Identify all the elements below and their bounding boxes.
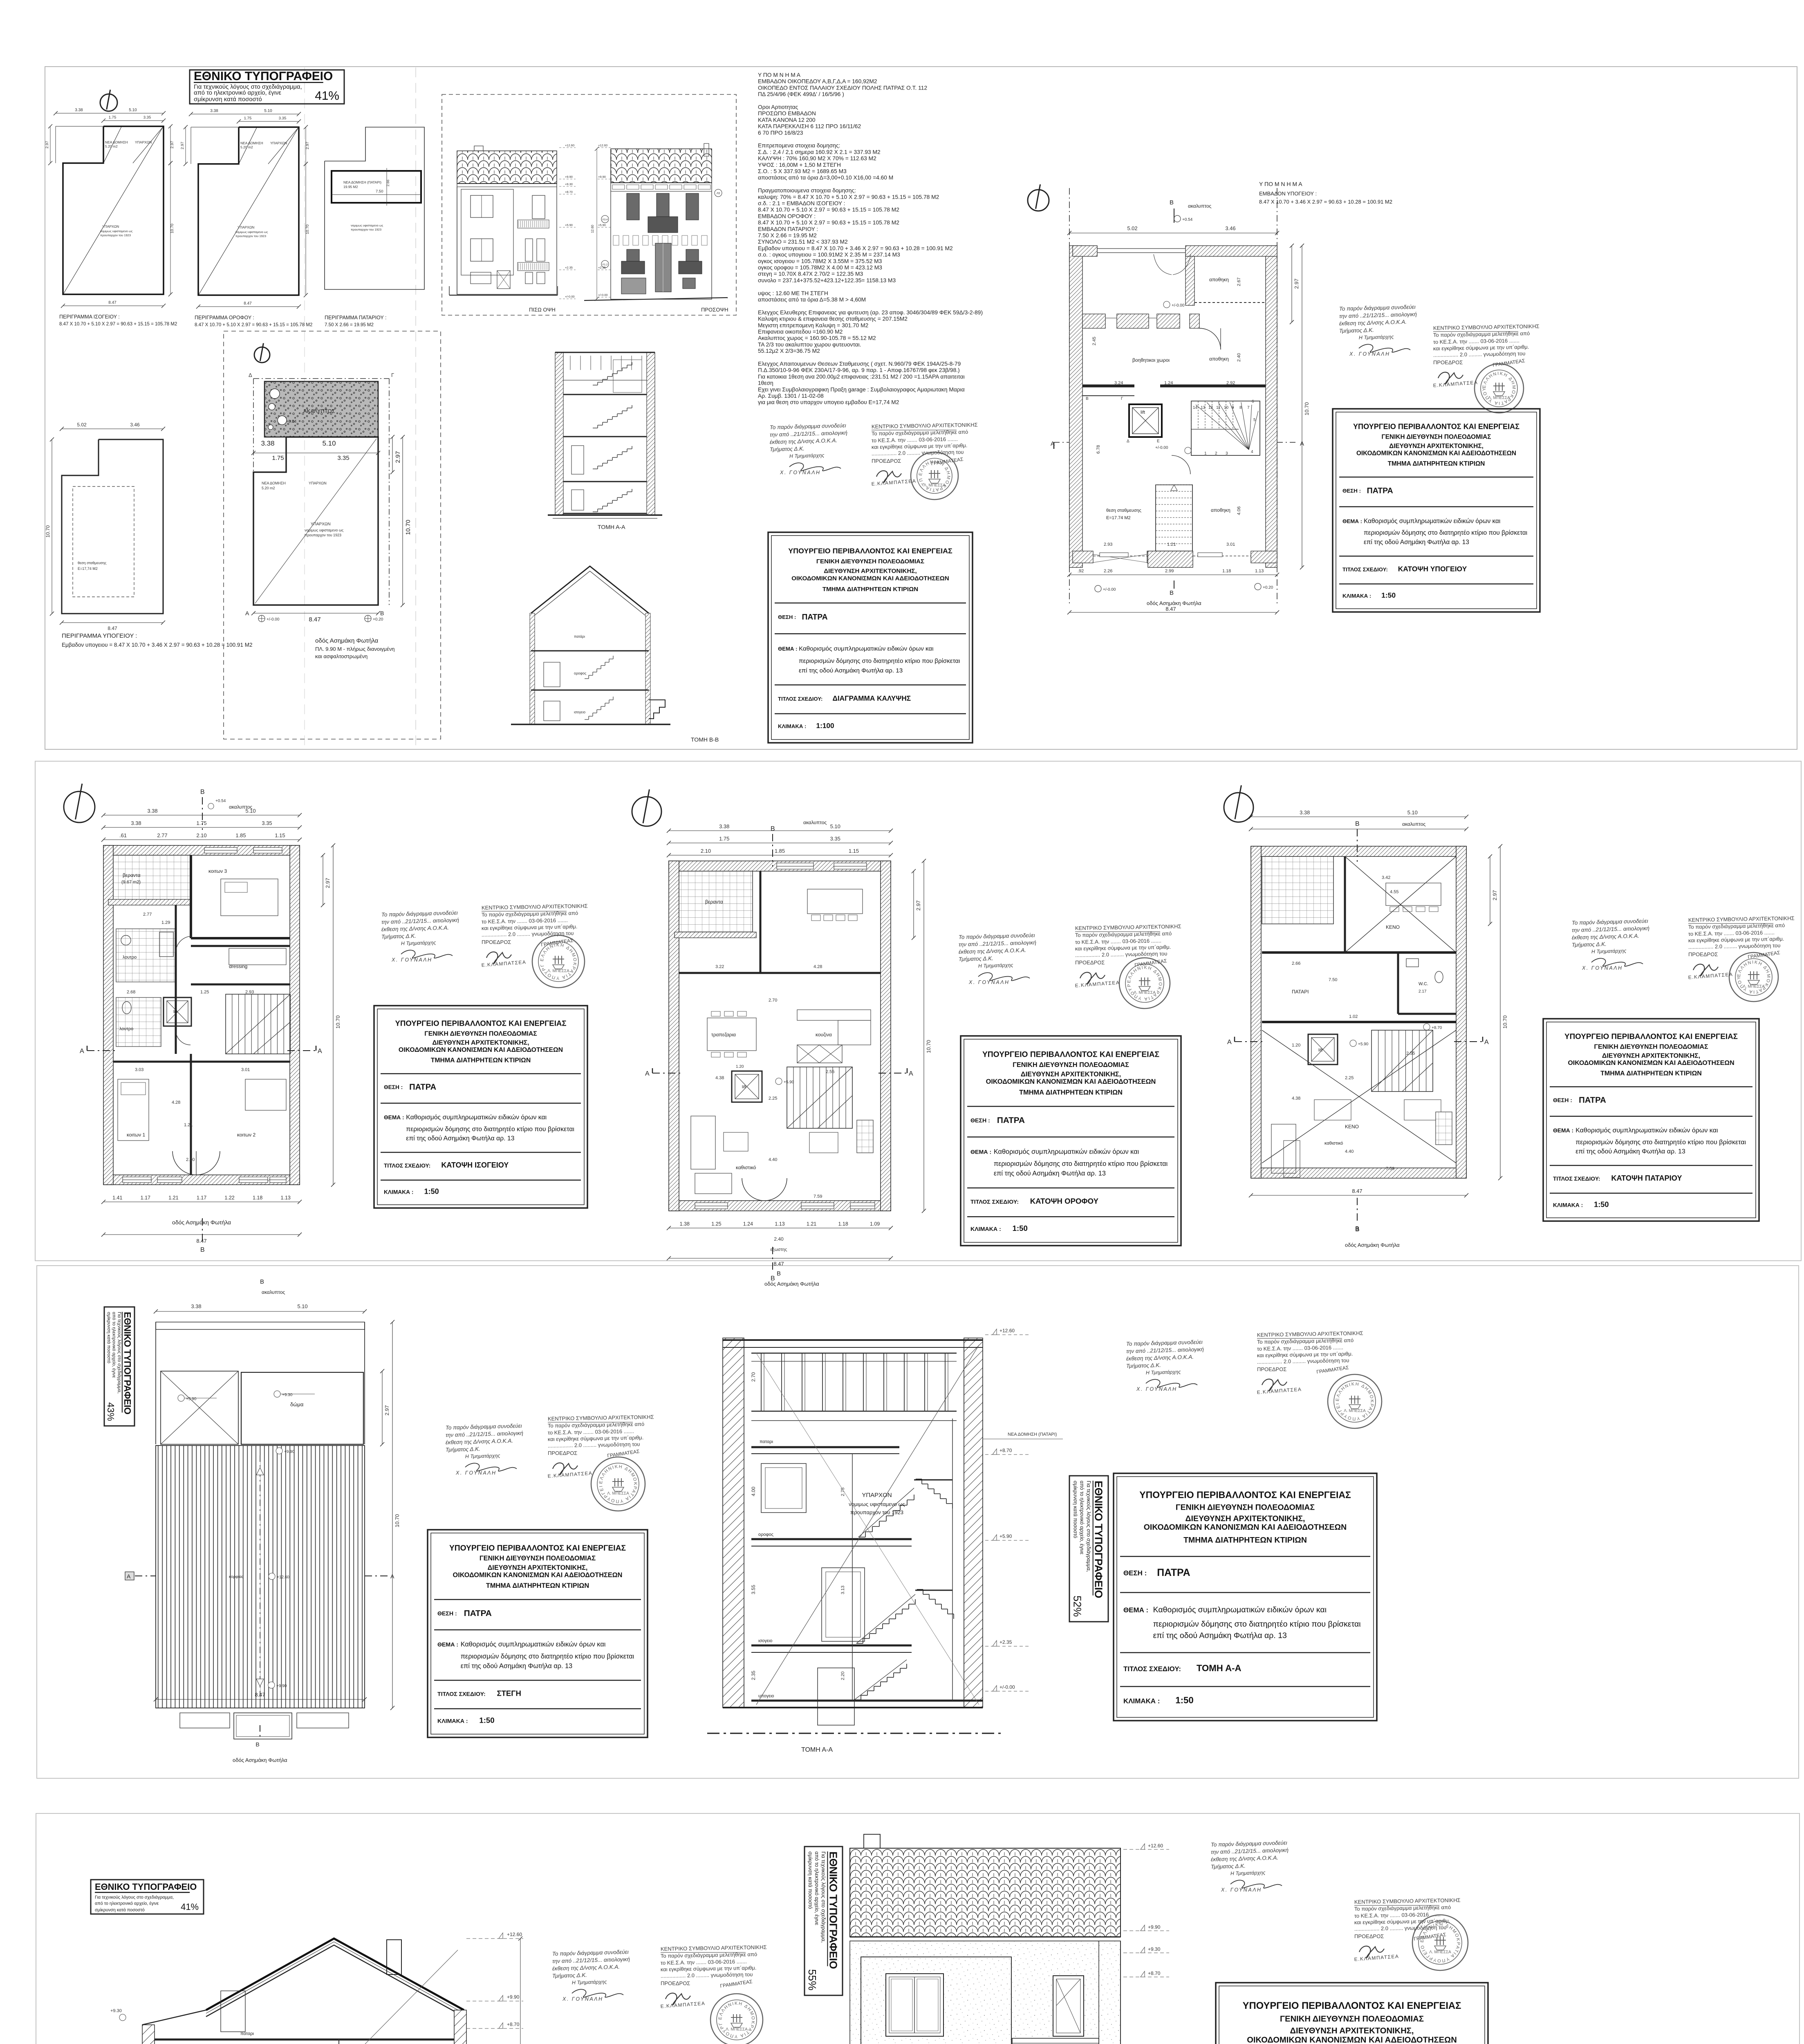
- svg-text:4.28: 4.28: [172, 1100, 180, 1105]
- svg-text:3.35: 3.35: [337, 455, 349, 462]
- svg-text:Τμήματος Δ.Κ.: Τμήματος Δ.Κ.: [1572, 941, 1607, 948]
- svg-text:lift: lift: [173, 1010, 177, 1014]
- svg-text:lift: lift: [1318, 1048, 1322, 1053]
- svg-text:σ.δ. : 2.1 = ΕΜΒΑΔΟΝ Ι: σ.δ. : 2.1 = ΕΜΒΑΔΟΝ ΙΣΟΓΕΙΟΥ :: [758, 200, 845, 206]
- svg-text:Χ. ΓΟΥΝΑΛΗ: Χ. ΓΟΥΝΑΛΗ: [455, 1470, 497, 1476]
- svg-text:νομιμως υφισταμενο ως: νομιμως υφισταμενο ως: [849, 1501, 905, 1507]
- svg-text:Β: Β: [777, 1270, 781, 1277]
- svg-text:2.97: 2.97: [384, 1405, 390, 1415]
- svg-text:ΔΙΕΥΘΥΝΣΗ ΑΡΧΙΤΕΚΤΟΝΙΚΗΣ,: ΔΙΕΥΘΥΝΣΗ ΑΡΧΙΤΕΚΤΟΝΙΚΗΣ,: [1021, 1071, 1121, 1078]
- svg-text:ΠΔ 25/4/96 (ΦΕΚ 499Δ' / 16/5/9: ΠΔ 25/4/96 (ΦΕΚ 499Δ' / 16/5/96 ): [758, 91, 844, 97]
- svg-text:Α: Α: [127, 1573, 131, 1580]
- svg-text:επί της οδού Ασημάκη Φωτήλα αρ: επί της οδού Ασημάκη Φωτήλα αρ. 13: [799, 667, 903, 674]
- svg-text:Λ. ΜΠΕΣΣΑ: Λ. ΜΠΕΣΣΑ: [1344, 1409, 1366, 1413]
- svg-text:ΠΡΟΣΩΠΟ ΕΜΒΑΔΟΝ: ΠΡΟΣΩΠΟ ΕΜΒΑΔΟΝ: [758, 110, 816, 117]
- svg-text:αποθηκη: αποθηκη: [1209, 277, 1229, 282]
- svg-text:ΑΚΑΛΥΠΤΟΣ: ΑΚΑΛΥΠΤΟΣ: [303, 408, 335, 414]
- svg-text:4.38: 4.38: [1292, 1096, 1300, 1101]
- svg-text:οδός Ασημάκη Φωτήλα: οδός Ασημάκη Φωτήλα: [172, 1219, 231, 1226]
- svg-text:1.13: 1.13: [775, 1221, 784, 1227]
- svg-text:2.25: 2.25: [1345, 1076, 1354, 1080]
- svg-text:νομιμως υφισταμενο ως: νομιμως υφισταμενο ως: [351, 224, 383, 227]
- svg-text:λουτρο: λουτρο: [123, 955, 137, 960]
- svg-text:5.20 m2: 5.20 m2: [105, 144, 118, 148]
- svg-text:ΓΕΝΙΚΗ ΔΙΕΥΘΥΝΣΗ ΠΟΛΕΟΔΟΜΙΑΣ: ΓΕΝΙΚΗ ΔΙΕΥΘΥΝΣΗ ΠΟΛΕΟΔΟΜΙΑΣ: [1280, 2015, 1424, 2024]
- svg-text:8.47: 8.47: [1165, 606, 1176, 612]
- svg-text:6.78: 6.78: [1096, 445, 1101, 454]
- svg-text:+/-0.00: +/-0.00: [999, 1684, 1015, 1690]
- svg-text:αποστάσεις από τα όρια Δ=5.38: αποστάσεις από τα όρια Δ=5.38 Μ > 4,60Μ: [758, 297, 866, 303]
- svg-text:12: 12: [1208, 406, 1213, 410]
- svg-text:Α: Α: [1484, 1039, 1489, 1046]
- svg-text:τραπεζαρια: τραπεζαρια: [711, 1032, 736, 1038]
- svg-text:1.02: 1.02: [1349, 1014, 1358, 1019]
- svg-text:ΘΕΣΗ :: ΘΕΣΗ :: [1553, 1097, 1572, 1103]
- svg-text:+9.30: +9.30: [282, 1393, 293, 1397]
- svg-text:επί της οδού Ασημάκη Φωτήλα αρ: επί της οδού Ασημάκη Φωτήλα αρ. 13: [1575, 1148, 1685, 1155]
- svg-text:+2.35: +2.35: [565, 266, 573, 269]
- svg-text:Η Τμηματάρχης: Η Τμηματάρχης: [978, 962, 1014, 969]
- svg-text:3.46: 3.46: [1225, 225, 1235, 231]
- svg-text:ΤΜΗΜΑ ΔΙΑΤΗΡΗΤΕΩΝ ΚΤΙΡΙΩΝ: ΤΜΗΜΑ ΔΙΑΤΗΡΗΤΕΩΝ ΚΤΙΡΙΩΝ: [1388, 460, 1485, 467]
- svg-text:+0.20: +0.20: [1263, 585, 1273, 590]
- svg-text:ΟΙΚΟΔΟΜΙΚΩΝ ΚΑΝΟΝΙΣΜΩΝ ΚΑΙ Α: ΟΙΚΟΔΟΜΙΚΩΝ ΚΑΝΟΝΙΣΜΩΝ ΚΑΙ ΑΔΕΙΟΔΟΤΗΣΕΩΝ: [1356, 450, 1516, 457]
- svg-text:ΘΕΜΑ :: ΘΕΜΑ :: [778, 645, 797, 652]
- svg-text:ΠΡΟΕΔΡΟΣ: ΠΡΟΕΔΡΟΣ: [1433, 359, 1463, 365]
- svg-text:+0.20: +0.20: [373, 617, 383, 622]
- svg-text:ΚΑΛΥΨΗ : 70% 160,90 Μ2 Χ 70%: ΚΑΛΥΨΗ : 70% 160,90 Μ2 Χ 70% = 112.63 Μ2: [758, 155, 876, 161]
- svg-text:ΠΡΟΕΔΡΟΣ: ΠΡΟΕΔΡΟΣ: [548, 1450, 577, 1456]
- svg-text:1.21: 1.21: [184, 1123, 193, 1127]
- svg-text:ΣΤΕΓΗ: ΣΤΕΓΗ: [497, 1689, 521, 1697]
- svg-text:Εμβαδον υπογειου = 8.47 Χ 10: Εμβαδον υπογειου = 8.47 Χ 10.70 + 3.46 Χ…: [758, 245, 953, 251]
- svg-text:1:50: 1:50: [424, 1187, 439, 1195]
- svg-text:σ.ο. : ογκος υπογειου = 10: σ.ο. : ογκος υπογειου = 100.91Μ2 Χ 2.35 …: [758, 252, 900, 258]
- svg-text:8.47: 8.47: [773, 1261, 784, 1267]
- svg-text:2.97: 2.97: [170, 141, 175, 149]
- svg-text:προυπαρχον του 1923: προυπαρχον του 1923: [305, 533, 341, 537]
- svg-text:ακαλυπτος: ακαλυπτος: [262, 1289, 285, 1295]
- svg-text:+/-0.00: +/-0.00: [267, 617, 280, 622]
- svg-text:ΝΕΑ ΔΟΜΗΣΗ: ΝΕΑ ΔΟΜΗΣΗ: [105, 140, 128, 144]
- svg-text:2.97: 2.97: [305, 142, 310, 150]
- svg-text:.61: .61: [119, 832, 127, 838]
- svg-text:8.47 Χ 10.70 + 5.10 Χ 2.97 = 9: 8.47 Χ 10.70 + 5.10 Χ 2.97 = 90.63 + 15.…: [59, 322, 177, 327]
- svg-text:2.00: 2.00: [186, 1157, 195, 1162]
- svg-text:ΚΛΙΜΑΚΑ :: ΚΛΙΜΑΚΑ :: [437, 1717, 468, 1724]
- svg-text:10.70: 10.70: [926, 1040, 932, 1053]
- svg-text:ΤΟΜΗ Α-Α: ΤΟΜΗ Α-Α: [1197, 1663, 1242, 1673]
- svg-text:2.17: 2.17: [1419, 989, 1427, 994]
- svg-text:10.70: 10.70: [1304, 402, 1310, 416]
- svg-text:ΔΙΕΥΘΥΝΣΗ ΑΡΧΙΤΕΚΤΟΝΙΚΗΣ,: ΔΙΕΥΘΥΝΣΗ ΑΡΧΙΤΕΚΤΟΝΙΚΗΣ,: [1389, 443, 1484, 450]
- svg-text:5.10: 5.10: [264, 109, 272, 113]
- svg-text:ΓΕΝΙΚΗ ΔΙΕΥΘΥΝΣΗ ΠΟΛΕΟΔΟΜΙΑΣ: ΓΕΝΙΚΗ ΔΙΕΥΘΥΝΣΗ ΠΟΛΕΟΔΟΜΙΑΣ: [480, 1555, 596, 1562]
- svg-text:8.47: 8.47: [309, 616, 320, 623]
- svg-text:52%: 52%: [1071, 1596, 1083, 1617]
- svg-text:ΔΙΕΥΘΥΝΣΗ ΑΡΧΙΤΕΚΤΟΝΙΚΗΣ,: ΔΙΕΥΘΥΝΣΗ ΑΡΧΙΤΕΚΤΟΝΙΚΗΣ,: [1290, 2026, 1414, 2035]
- svg-text:ΥΠΟΥΡΓΕΙΟ ΠΕΡΙΒΑΛΛΟΝΤΟΣ ΚΑΙ: ΥΠΟΥΡΓΕΙΟ ΠΕΡΙΒΑΛΛΟΝΤΟΣ ΚΑΙ ΕΝΕΡΓΕΙΑΣ: [982, 1050, 1159, 1059]
- svg-text:1.17: 1.17: [141, 1195, 150, 1201]
- svg-text:6: 6: [1252, 399, 1254, 404]
- svg-text:ΓΕΝΙΚΗ ΔΙΕΥΘΥΝΣΗ ΠΟΛΕΟΔΟΜΙΑΣ: ΓΕΝΙΚΗ ΔΙΕΥΘΥΝΣΗ ΠΟΛΕΟΔΟΜΙΑΣ: [1382, 434, 1491, 441]
- svg-text:2.35: 2.35: [751, 1670, 756, 1680]
- svg-text:1.22: 1.22: [224, 1195, 234, 1201]
- svg-text:ΘΕΣΗ :: ΘΕΣΗ :: [970, 1117, 990, 1124]
- svg-text:Σ.Δ. : 2,4 / 2,1 σημερα 160.9: Σ.Δ. : 2,4 / 2,1 σημερα 160.92 Χ 2.1 = 3…: [758, 149, 881, 155]
- svg-text:41%: 41%: [315, 89, 339, 103]
- svg-text:ακαλυπτος: ακαλυπτος: [1402, 821, 1426, 827]
- svg-text:ΥΨΟΣ : 16,00Μ + 1,50 Μ ΣΤΕΓΗ: ΥΨΟΣ : 16,00Μ + 1,50 Μ ΣΤΕΓΗ: [758, 162, 841, 168]
- svg-text:19.95 Μ2: 19.95 Μ2: [343, 185, 358, 189]
- svg-text:ΠΑΤΡΑ: ΠΑΤΡΑ: [464, 1609, 492, 1618]
- svg-text:Σ.Ο. : 5 Χ 337.93 Μ2 = 1689.65: Σ.Ο. : 5 Χ 337.93 Μ2 = 1689.65 Μ3: [758, 168, 847, 175]
- svg-text:Λ5: Λ5: [717, 192, 720, 195]
- svg-text:2: 2: [1215, 451, 1217, 456]
- svg-text:κουζινα: κουζινα: [816, 1032, 832, 1038]
- svg-text:Εχει γινει Συμβολαιογραφικη Πρ: Εχει γινει Συμβολαιογραφικη Πραξη garage…: [758, 386, 965, 392]
- svg-text:ΥΠΑΡΧΩΝ: ΥΠΑΡΧΩΝ: [135, 140, 152, 144]
- svg-text:7.50 Χ 2.66 = 19.95 Μ2: 7.50 Χ 2.66 = 19.95 Μ2: [325, 323, 374, 327]
- svg-text:+5.90: +5.90: [1358, 1042, 1369, 1047]
- svg-text:ΤΙΤΛΟΣ ΣΧΕΔΙΟΥ:: ΤΙΤΛΟΣ ΣΧΕΔΙΟΥ:: [970, 1199, 1019, 1205]
- svg-text:7.59: 7.59: [813, 1194, 822, 1199]
- svg-text:ακαλυπτος: ακαλυπτος: [229, 804, 253, 810]
- svg-text:ΟΙΚΟΔΟΜΙΚΩΝ ΚΑΝΟΝΙΣΜΩΝ ΚΑΙ Α: ΟΙΚΟΔΟΜΙΚΩΝ ΚΑΝΟΝΙΣΜΩΝ ΚΑΙ ΑΔΕΙΟΔΟΤΗΣΕΩΝ: [1247, 2035, 1457, 2044]
- svg-text:περιορισμών δόμησης στο διατηρ: περιορισμών δόμησης στο διατηρητέο κτίρι…: [1575, 1139, 1746, 1146]
- svg-text:περιορισμών δόμησης στο διατηρ: περιορισμών δόμησης στο διατηρητέο κτίρι…: [1364, 529, 1527, 536]
- svg-text:3.38: 3.38: [131, 820, 141, 826]
- svg-text:ΚΑΤΟΨΗ ΙΣΟΓΕΙΟΥ: ΚΑΤΟΨΗ ΙΣΟΓΕΙΟΥ: [441, 1161, 509, 1169]
- svg-text:7.50: 7.50: [376, 189, 383, 194]
- svg-text:3.38: 3.38: [1300, 809, 1310, 816]
- svg-text:5.10: 5.10: [830, 823, 840, 829]
- svg-text:ΔΙΕΥΘΥΝΣΗ ΑΡΧΙΤΕΚΤΟΝΙΚΗΣ,: ΔΙΕΥΘΥΝΣΗ ΑΡΧΙΤΕΚΤΟΝΙΚΗΣ,: [488, 1564, 588, 1571]
- svg-text:κοιτων 2: κοιτων 2: [237, 1132, 255, 1138]
- svg-text:2.92: 2.92: [1226, 381, 1235, 385]
- svg-text:Τμήματος Δ.Κ.: Τμήματος Δ.Κ.: [446, 1446, 480, 1453]
- svg-text:Τμήματος Δ.Κ.: Τμήματος Δ.Κ.: [1339, 327, 1374, 334]
- svg-text:ΘΕΣΗ :: ΘΕΣΗ :: [1342, 488, 1361, 494]
- svg-text:Β: Β: [771, 1275, 775, 1282]
- svg-text:ΚΑΤΟΨΗ ΠΑΤΑΡΙΟΥ: ΚΑΤΟΨΗ ΠΑΤΑΡΙΟΥ: [1611, 1174, 1682, 1182]
- svg-text:2.66: 2.66: [1292, 961, 1300, 966]
- svg-text:3.38: 3.38: [261, 439, 274, 447]
- svg-text:νομιμως υφισταμενο ως: νομιμως υφισταμενο ως: [305, 528, 344, 532]
- svg-text:5.10: 5.10: [1407, 809, 1418, 816]
- svg-text:ΤΜΗΜΑ ΔΙΑΤΗΡΗΤΕΩΝ ΚΤΙΡΙΩΝ: ΤΜΗΜΑ ΔΙΑΤΗΡΗΤΕΩΝ ΚΤΙΡΙΩΝ: [1183, 1535, 1307, 1544]
- svg-text:+8.70: +8.70: [1432, 1026, 1442, 1030]
- svg-text:8.47 Χ 10.70 + 5.10 Χ 2.97 = 9: 8.47 Χ 10.70 + 5.10 Χ 2.97 = 90.63 + 15.…: [758, 220, 899, 226]
- svg-text:1.21: 1.21: [807, 1221, 816, 1227]
- svg-text:σμίκρυνση κατά ποσοστό: σμίκρυνση κατά ποσοστό: [194, 96, 262, 103]
- svg-text:ΠΑΤΡΑ: ΠΑΤΡΑ: [1579, 1096, 1606, 1105]
- svg-text:ακαλυπτος: ακαλυπτος: [803, 820, 827, 825]
- svg-text:3.35: 3.35: [262, 820, 272, 826]
- svg-text:+8.70: +8.70: [507, 2022, 520, 2027]
- svg-text:ΠΡΟΣΟΨΗ: ΠΡΟΣΟΨΗ: [701, 307, 728, 313]
- svg-text:4.28: 4.28: [813, 964, 822, 969]
- svg-text:Χ. ΓΟΥΝΑΛΗ: Χ. ΓΟΥΝΑΛΗ: [1582, 965, 1623, 971]
- svg-text:ΟΙΚΟΔΟΜΙΚΩΝ ΚΑΝΟΝΙΣΜΩΝ ΚΑΙ Α: ΟΙΚΟΔΟΜΙΚΩΝ ΚΑΝΟΝΙΣΜΩΝ ΚΑΙ ΑΔΕΙΟΔΟΤΗΣΕΩΝ: [1568, 1060, 1734, 1067]
- svg-text:ΥΠΑΡΧΩΝ: ΥΠΑΡΧΩΝ: [270, 141, 287, 145]
- svg-text:(9.67 m2): (9.67 m2): [121, 880, 141, 885]
- svg-text:2.68: 2.68: [127, 990, 135, 995]
- svg-text:ΚΛΙΜΑΚΑ :: ΚΛΙΜΑΚΑ :: [1553, 1201, 1583, 1208]
- svg-text:ΕΘΝΙΚΟ ΤΥΠΟΓΡΑΦΕΙΟ: ΕΘΝΙΚΟ ΤΥΠΟΓΡΑΦΕΙΟ: [95, 1882, 197, 1892]
- svg-text:ΥΠΟΥΡΓΕΙΟ ΠΕΡΙΒΑΛΛΟΝΤΟΣ ΚΑΙ: ΥΠΟΥΡΓΕΙΟ ΠΕΡΙΒΑΛΛΟΝΤΟΣ ΚΑΙ ΕΝΕΡΓΕΙΑΣ: [1564, 1032, 1738, 1041]
- svg-text:2.97: 2.97: [915, 900, 921, 910]
- svg-text:περιορισμών δόμησης στο διατηρ: περιορισμών δόμησης στο διατηρητέο κτίρι…: [1153, 1620, 1361, 1629]
- svg-text:ΓΕΝΙΚΗ ΔΙΕΥΘΥΝΣΗ ΠΟΛΕΟΔΟΜΙΑΣ: ΓΕΝΙΚΗ ΔΙΕΥΘΥΝΣΗ ΠΟΛΕΟΔΟΜΙΑΣ: [1176, 1503, 1315, 1512]
- svg-text:ΔΙΕΥΘΥΝΣΗ ΑΡΧΙΤΕΚΤΟΝΙΚΗΣ,: ΔΙΕΥΘΥΝΣΗ ΑΡΧΙΤΕΚΤΟΝΙΚΗΣ,: [824, 567, 917, 574]
- svg-text:ΓΕΝΙΚΗ ΔΙΕΥΘΥΝΣΗ ΠΟΛΕΟΔΟΜΙΑΣ: ΓΕΝΙΚΗ ΔΙΕΥΘΥΝΣΗ ΠΟΛΕΟΔΟΜΙΑΣ: [424, 1030, 537, 1037]
- svg-text:Λ. ΜΠΕΣΣΑ: Λ. ΜΠΕΣΣΑ: [607, 1491, 629, 1496]
- svg-text:1.85: 1.85: [775, 848, 785, 854]
- svg-text:10.70: 10.70: [335, 1015, 341, 1029]
- svg-text:4.38: 4.38: [715, 1076, 724, 1080]
- svg-text:κοιτων 3: κοιτων 3: [208, 868, 227, 874]
- svg-text:10.70: 10.70: [45, 525, 51, 538]
- svg-text:ΟΙΚΟΔΟΜΙΚΩΝ ΚΑΝΟΝΙΣΜΩΝ ΚΑΙ Α: ΟΙΚΟΔΟΜΙΚΩΝ ΚΑΝΟΝΙΣΜΩΝ ΚΑΙ ΑΔΕΙΟΔΟΤΗΣΕΩΝ: [986, 1078, 1156, 1085]
- svg-text:ΥΠΑΡΧΩΝ: ΥΠΑΡΧΩΝ: [309, 481, 327, 485]
- svg-text:Λ1,2: Λ1,2: [602, 263, 608, 266]
- svg-text:επί της οδού Ασημάκη Φωτήλα αρ: επί της οδού Ασημάκη Φωτήλα αρ. 13: [461, 1662, 573, 1670]
- svg-text:ΘΕΣΗ :: ΘΕΣΗ :: [437, 1610, 457, 1616]
- svg-text:ΤΜΗΜΑ ΔΙΑΤΗΡΗΤΕΩΝ ΚΤΙΡΙΩΝ: ΤΜΗΜΑ ΔΙΑΤΗΡΗΤΕΩΝ ΚΤΙΡΙΩΝ: [1019, 1089, 1123, 1096]
- svg-text:1:50: 1:50: [1381, 591, 1396, 599]
- svg-text:2.55: 2.55: [826, 1069, 834, 1074]
- svg-text:ΚΛΙΜΑΚΑ :: ΚΛΙΜΑΚΑ :: [970, 1226, 1001, 1233]
- svg-text:ΤΜΗΜΑ ΔΙΑΤΗΡΗΤΕΩΝ ΚΤΙΡΙΩΝ: ΤΜΗΜΑ ΔΙΑΤΗΡΗΤΕΩΝ ΚΤΙΡΙΩΝ: [822, 586, 918, 593]
- svg-text:Α: Α: [909, 1070, 913, 1077]
- svg-text:Υ ΠΟ Μ Ν Η Μ Α: Υ ΠΟ Μ Ν Η Μ Α: [1259, 181, 1302, 187]
- svg-text:από το ηλεκτρονικό αρχείο, έγι: από το ηλεκτρονικό αρχείο, έγινε: [95, 1901, 159, 1906]
- svg-text:1.13: 1.13: [281, 1195, 291, 1201]
- svg-text:4.40: 4.40: [1345, 1149, 1354, 1154]
- svg-text:επί της οδού Ασημάκη Φωτήλα αρ: επί της οδού Ασημάκη Φωτήλα αρ. 13: [1364, 539, 1469, 546]
- svg-text:3.01: 3.01: [241, 1067, 250, 1072]
- svg-text:1.15: 1.15: [849, 848, 859, 854]
- svg-text:43%: 43%: [105, 1402, 116, 1421]
- svg-text:καθιστικό: καθιστικό: [1324, 1141, 1343, 1146]
- svg-text:1.24: 1.24: [743, 1221, 753, 1227]
- svg-text:10.70: 10.70: [405, 520, 412, 535]
- svg-text:Επιφανεια οικοπεδου =160.90 Μ2: Επιφανεια οικοπεδου =160.90 Μ2: [758, 329, 843, 335]
- svg-text:Καθορισμός συμπληρωματικών: Καθορισμός συμπληρωματικών ειδικών όρων …: [994, 1148, 1139, 1155]
- svg-text:1.75: 1.75: [719, 836, 729, 842]
- svg-text:10.70: 10.70: [170, 224, 175, 233]
- svg-text:lift: lift: [742, 1085, 746, 1089]
- svg-text:οδός Ασημάκη Φωτήλα: οδός Ασημάκη Φωτήλα: [233, 1757, 287, 1763]
- svg-text:+12.60: +12.60: [1148, 1843, 1163, 1849]
- svg-text:ΠΑΤΡΑ: ΠΑΤΡΑ: [409, 1083, 436, 1091]
- svg-text:ΘΕΜΑ :: ΘΕΜΑ :: [1342, 518, 1362, 524]
- svg-text:Β: Β: [1355, 820, 1360, 827]
- svg-text:1.13: 1.13: [1255, 569, 1264, 574]
- svg-text:ΤΙΤΛΟΣ ΣΧΕΔΙΟΥ:: ΤΙΤΛΟΣ ΣΧΕΔΙΟΥ:: [1342, 567, 1388, 573]
- svg-text:7: 7: [1247, 406, 1250, 410]
- svg-text:Β: Β: [200, 1246, 205, 1253]
- svg-text:1θεση: 1θεση: [758, 380, 773, 386]
- svg-text:ΥΠΟΥΡΓΕΙΟ ΠΕΡΙΒΑΛΛΟΝΤΟΣ ΚΑΙ: ΥΠΟΥΡΓΕΙΟ ΠΕΡΙΒΑΛΛΟΝΤΟΣ ΚΑΙ ΕΝΕΡΓΕΙΑΣ: [1353, 423, 1519, 431]
- svg-text:55.12μ2 Χ 2/3=36.75 Μ2: 55.12μ2 Χ 2/3=36.75 Μ2: [758, 348, 820, 354]
- svg-text:Β: Β: [380, 610, 384, 616]
- svg-text:σμίκρυνση κατά ποσοστό: σμίκρυνση κατά ποσοστό: [106, 1312, 111, 1363]
- svg-text:Η Τμηματάρχης: Η Τμηματάρχης: [1230, 1870, 1266, 1876]
- svg-text:Χ. ΓΟΥΝΑΛΗ: Χ. ΓΟΥΝΑΛΗ: [391, 957, 433, 963]
- svg-text:ΘΕΣΗ :: ΘΕΣΗ :: [384, 1084, 403, 1090]
- svg-text:2.40: 2.40: [1237, 353, 1242, 362]
- svg-text:ΚΛΙΜΑΚΑ :: ΚΛΙΜΑΚΑ :: [1342, 593, 1371, 599]
- svg-text:ΠΑΤΑΡΙ: ΠΑΤΑΡΙ: [1292, 989, 1309, 995]
- svg-text:Γ: Γ: [391, 372, 394, 378]
- svg-text:2.97: 2.97: [180, 142, 185, 150]
- svg-text:ακαλυπτος: ακαλυπτος: [1188, 203, 1212, 209]
- svg-text:lift: lift: [1141, 410, 1145, 415]
- svg-text:ΕΜΒΑΔΟΝ ΠΑΤΑΡΙΟΥ :: ΕΜΒΑΔΟΝ ΠΑΤΑΡΙΟΥ :: [758, 226, 818, 232]
- svg-text:Πραγματοποιουμενα στοιχεια δομ: Πραγματοποιουμενα στοιχεια δομησης:: [758, 188, 856, 194]
- svg-text:Η Τμηματάρχης: Η Τμηματάρχης: [401, 940, 437, 946]
- svg-text:ΚΑΤΟΨΗ ΟΡΟΦΟΥ: ΚΑΤΟΨΗ ΟΡΟΦΟΥ: [1030, 1197, 1099, 1205]
- svg-text:Λ. ΜΠΕΣΣΑ: Λ. ΜΠΕΣΣΑ: [726, 2027, 748, 2032]
- svg-text:ΚΛΙΜΑΚΑ :: ΚΛΙΜΑΚΑ :: [384, 1189, 413, 1195]
- svg-text:5.20 m2: 5.20 m2: [262, 486, 275, 490]
- svg-text:+/-0.00: +/-0.00: [1103, 587, 1116, 592]
- svg-text:+5.90: +5.90: [999, 1533, 1012, 1539]
- svg-text:επί της οδού Ασημάκη Φωτήλα αρ: επί της οδού Ασημάκη Φωτήλα αρ. 13: [994, 1170, 1106, 1177]
- svg-text:3.35: 3.35: [279, 116, 287, 121]
- svg-text:ΟΙΚΟΔΟΜΙΚΩΝ ΚΑΝΟΝΙΣΜΩΝ ΚΑΙ Α: ΟΙΚΟΔΟΜΙΚΩΝ ΚΑΝΟΝΙΣΜΩΝ ΚΑΙ ΑΔΕΙΟΔΟΤΗΣΕΩΝ: [399, 1047, 563, 1053]
- svg-text:1.21: 1.21: [168, 1195, 178, 1201]
- svg-text:ΥΠΟΥΡΓΕΙΟ ΠΕΡΙΒΑΛΛΟΝΤΟΣ ΚΑΙ: ΥΠΟΥΡΓΕΙΟ ΠΕΡΙΒΑΛΛΟΝΤΟΣ ΚΑΙ ΕΝΕΡΓΕΙΑΣ: [788, 547, 952, 555]
- svg-text:Τμήματος Δ.Κ.: Τμήματος Δ.Κ.: [1211, 1863, 1246, 1870]
- svg-text:παταρι: παταρι: [240, 2031, 254, 2036]
- svg-text:ΔΙΕΥΘΥΝΣΗ ΑΡΧΙΤΕΚΤΟΝΙΚΗΣ,: ΔΙΕΥΘΥΝΣΗ ΑΡΧΙΤΕΚΤΟΝΙΚΗΣ,: [1185, 1514, 1305, 1523]
- svg-text:3.22: 3.22: [715, 964, 724, 969]
- svg-text:2.10: 2.10: [196, 832, 206, 838]
- svg-text:Η Τμηματάρχης: Η Τμηματάρχης: [1591, 948, 1627, 955]
- svg-text:Β: Β: [1170, 199, 1174, 206]
- svg-text:Δ: Δ: [1127, 439, 1129, 444]
- svg-text:ΠΕΡΙΓΡΑΜΜΑ ΟΡΟΦΟΥ :: ΠΕΡΙΓΡΑΜΜΑ ΟΡΟΦΟΥ :: [195, 315, 254, 320]
- svg-text:8.47: 8.47: [108, 625, 117, 631]
- svg-text:5.10: 5.10: [322, 439, 336, 447]
- svg-text:ΠΑΤΡΑ: ΠΑΤΡΑ: [802, 613, 828, 622]
- svg-text:3.38: 3.38: [191, 1303, 201, 1309]
- svg-text:2.77: 2.77: [157, 832, 167, 838]
- svg-text:Α: Α: [1300, 440, 1304, 447]
- svg-text:+/-0.00: +/-0.00: [1172, 303, 1185, 308]
- svg-text:1.75: 1.75: [244, 116, 252, 121]
- svg-text:Υ ΠΟ Μ Ν Η Μ Α: Υ ΠΟ Μ Ν Η Μ Α: [758, 72, 801, 78]
- svg-text:ΠΕΡΙΓΡΑΜΜΑ ΙΣΟΓΕΙΟΥ :: ΠΕΡΙΓΡΑΜΜΑ ΙΣΟΓΕΙΟΥ :: [59, 314, 120, 320]
- svg-text:8.47 Χ 10.70 + 3.46 Χ 2.97 = 9: 8.47 Χ 10.70 + 3.46 Χ 2.97 = 90.63 + 10.…: [1259, 199, 1392, 205]
- svg-text:ΥΠΟΥΡΓΕΙΟ ΠΕΡΙΒΑΛΛΟΝΤΟΣ ΚΑΙ: ΥΠΟΥΡΓΕΙΟ ΠΕΡΙΒΑΛΛΟΝΤΟΣ ΚΑΙ ΕΝΕΡΓΕΙΑΣ: [395, 1019, 566, 1028]
- svg-text:4.55: 4.55: [1390, 890, 1398, 894]
- svg-text:ΥΠΑΡΧΩΝ: ΥΠΑΡΧΩΝ: [238, 225, 254, 229]
- svg-text:ΔΙΕΥΘΥΝΣΗ ΑΡΧΙΤΕΚΤΟΝΙΚΗΣ,: ΔΙΕΥΘΥΝΣΗ ΑΡΧΙΤΕΚΤΟΝΙΚΗΣ,: [432, 1040, 529, 1047]
- svg-text:ΥΠΟΥΡΓΕΙΟ ΠΕΡΙΒΑΛΛΟΝΤΟΣ ΚΑΙ: ΥΠΟΥΡΓΕΙΟ ΠΕΡΙΒΑΛΛΟΝΤΟΣ ΚΑΙ ΕΝΕΡΓΕΙΑΣ: [1139, 1490, 1351, 1500]
- svg-text:προυπαρχον του 1923: προυπαρχον του 1923: [351, 228, 381, 231]
- svg-text:ΕΜΒΑΔΟΝ ΟΙΚΟΠΕΔΟΥ Α,Β,Γ,Δ,Α =: ΕΜΒΑΔΟΝ ΟΙΚΟΠΕΔΟΥ Α,Β,Γ,Δ,Α = 160,92Μ2: [758, 78, 877, 85]
- svg-text:περιορισμών δόμησης στο διατηρ: περιορισμών δόμησης στο διατηρητέο κτίρι…: [406, 1126, 574, 1133]
- svg-text:περιορισμών δόμησης στο διατηρ: περιορισμών δόμησης στο διατηρητέο κτίρι…: [994, 1160, 1168, 1168]
- svg-text:περιορισμών δόμησης στο διατηρ: περιορισμών δόμησης στο διατηρητέο κτίρι…: [799, 657, 960, 664]
- svg-text:Β: Β: [771, 825, 775, 832]
- svg-text:2.10: 2.10: [701, 848, 711, 854]
- svg-text:1:50: 1:50: [1175, 1695, 1193, 1706]
- svg-text:ΝΕΑ ΔΟΜΗΣΗ (ΠΑΤΑΡΙ): ΝΕΑ ΔΟΜΗΣΗ (ΠΑΤΑΡΙ): [1008, 1432, 1057, 1437]
- svg-text:1.18: 1.18: [1222, 569, 1231, 574]
- svg-text:Καθορισμός συμπληρωματικών: Καθορισμός συμπληρωματικών ειδικών όρων …: [1153, 1605, 1327, 1614]
- svg-text:1:50: 1:50: [479, 1716, 494, 1724]
- svg-text:.92: .92: [1078, 569, 1084, 574]
- svg-text:ΤΟΜΗ Α-Α: ΤΟΜΗ Α-Α: [598, 524, 625, 530]
- svg-text:ΓΕΝΙΚΗ ΔΙΕΥΘΥΝΣΗ ΠΟΛΕΟΔΟΜΙΑΣ: ΓΕΝΙΚΗ ΔΙΕΥΘΥΝΣΗ ΠΟΛΕΟΔΟΜΙΑΣ: [1013, 1061, 1129, 1069]
- svg-text:Η Τμηματάρχης: Η Τμηματάρχης: [1146, 1369, 1181, 1376]
- svg-text:ισογειο: ισογειο: [758, 1638, 772, 1643]
- svg-text:δώμα: δώμα: [290, 1401, 304, 1407]
- svg-text:9: 9: [1232, 406, 1234, 410]
- svg-text:Π.Δ.350/10-9-96 ΦΕΚ 230Α/17-9-: Π.Δ.350/10-9-96 ΦΕΚ 230Α/17-9-96, αρ. 9 …: [758, 367, 960, 373]
- svg-text:+8.70: +8.70: [565, 190, 573, 194]
- svg-text:4: 4: [1251, 450, 1253, 454]
- svg-text:ΠΑΤΡΑ: ΠΑΤΡΑ: [1367, 486, 1393, 495]
- svg-text:κορφιας: κορφιας: [229, 1575, 244, 1579]
- svg-text:1.24: 1.24: [1164, 381, 1173, 385]
- svg-text:1.38: 1.38: [680, 1221, 690, 1227]
- svg-text:ΚΑΤΟΨΗ ΥΠΟΓΕΙΟΥ: ΚΑΤΟΨΗ ΥΠΟΓΕΙΟΥ: [1398, 565, 1467, 573]
- svg-text:4.40: 4.40: [769, 1157, 777, 1162]
- svg-text:Καθορισμός συμπληρωματικών: Καθορισμός συμπληρωματικών ειδικών όρων …: [1364, 518, 1500, 524]
- svg-text:+/-0.00: +/-0.00: [565, 295, 575, 298]
- svg-text:Ελεγχος Απαιτουμενων Θεσεων Στ: Ελεγχος Απαιτουμενων Θεσεων Σταθμευσης (…: [758, 361, 961, 367]
- svg-text:ΤΑ 2/3 του ακαλυπτου χωρου φυτ: ΤΑ 2/3 του ακαλυπτου χωρου φυτευονται.: [758, 341, 861, 347]
- svg-text:βοηθητικοι χωροι: βοηθητικοι χωροι: [1132, 357, 1170, 363]
- svg-text:+12.60: +12.60: [507, 1932, 522, 1937]
- svg-text:ΠΛ. 9.90 Μ - πλήρως διανοιγμέν: ΠΛ. 9.90 Μ - πλήρως διανοιγμένη: [315, 646, 395, 652]
- svg-text:+12.60: +12.60: [598, 143, 607, 147]
- svg-text:Τμήματος Δ.Κ.: Τμήματος Δ.Κ.: [770, 446, 805, 453]
- svg-text:+/-0.00: +/-0.00: [1155, 446, 1168, 450]
- svg-text:+9.30: +9.30: [565, 182, 573, 186]
- svg-text:Ε=17,74 Μ2: Ε=17,74 Μ2: [78, 567, 98, 571]
- svg-text:8.47 Χ 10.70 + 5.10 Χ 2.97 = 9: 8.47 Χ 10.70 + 5.10 Χ 2.97 = 90.63 + 15.…: [758, 207, 899, 213]
- svg-text:+8.70: +8.70: [999, 1448, 1012, 1453]
- svg-text:Καθορισμός συμπληρωματικών: Καθορισμός συμπληρωματικών ειδικών όρων …: [461, 1641, 606, 1648]
- svg-text:προυπαρχον του 1923: προυπαρχον του 1923: [100, 233, 131, 237]
- svg-text:8.47: 8.47: [108, 300, 117, 305]
- svg-text:ΤΙΤΛΟΣ ΣΧΕΔΙΟΥ:: ΤΙΤΛΟΣ ΣΧΕΔΙΟΥ:: [1553, 1175, 1600, 1182]
- svg-text:Α: Α: [245, 610, 249, 616]
- svg-text:Χ. ΓΟΥΝΑΛΗ: Χ. ΓΟΥΝΑΛΗ: [1221, 1887, 1262, 1893]
- svg-text:6 70 ΠΡΟ 16/: 6 70 ΠΡΟ 16/8/23: [758, 130, 803, 136]
- svg-text:1:100: 1:100: [816, 722, 834, 730]
- svg-text:ΠΡΟΕΔΡΟΣ: ΠΡΟΕΔΡΟΣ: [872, 458, 901, 464]
- svg-text:+5.90: +5.90: [598, 223, 606, 227]
- svg-text:1.15: 1.15: [275, 832, 285, 838]
- svg-text:ΚΑΤΑ ΚΑΝΟΝΑ 12: ΚΑΤΑ ΚΑΝΟΝΑ 12 200: [758, 117, 816, 123]
- svg-text:ΕΘΝΙΚΟ ΤΥΠΟΓΡΑΦΕΙΟ: ΕΘΝΙΚΟ ΤΥΠΟΓΡΑΦΕΙΟ: [1093, 1481, 1105, 1598]
- svg-text:ΠΡΟΕΔΡΟΣ: ΠΡΟΕΔΡΟΣ: [661, 1980, 690, 1986]
- svg-text:Οροι Αρτιοτητας: Οροι Αρτιοτητας: [758, 104, 798, 110]
- svg-text:3.35: 3.35: [143, 115, 151, 120]
- svg-text:8: 8: [1239, 406, 1242, 410]
- svg-text:Χ. ΓΟΥΝΑΛΗ: Χ. ΓΟΥΝΑΛΗ: [968, 979, 1010, 985]
- svg-text:αποθηκη: αποθηκη: [1209, 356, 1229, 362]
- svg-text:3.01: 3.01: [1226, 542, 1235, 547]
